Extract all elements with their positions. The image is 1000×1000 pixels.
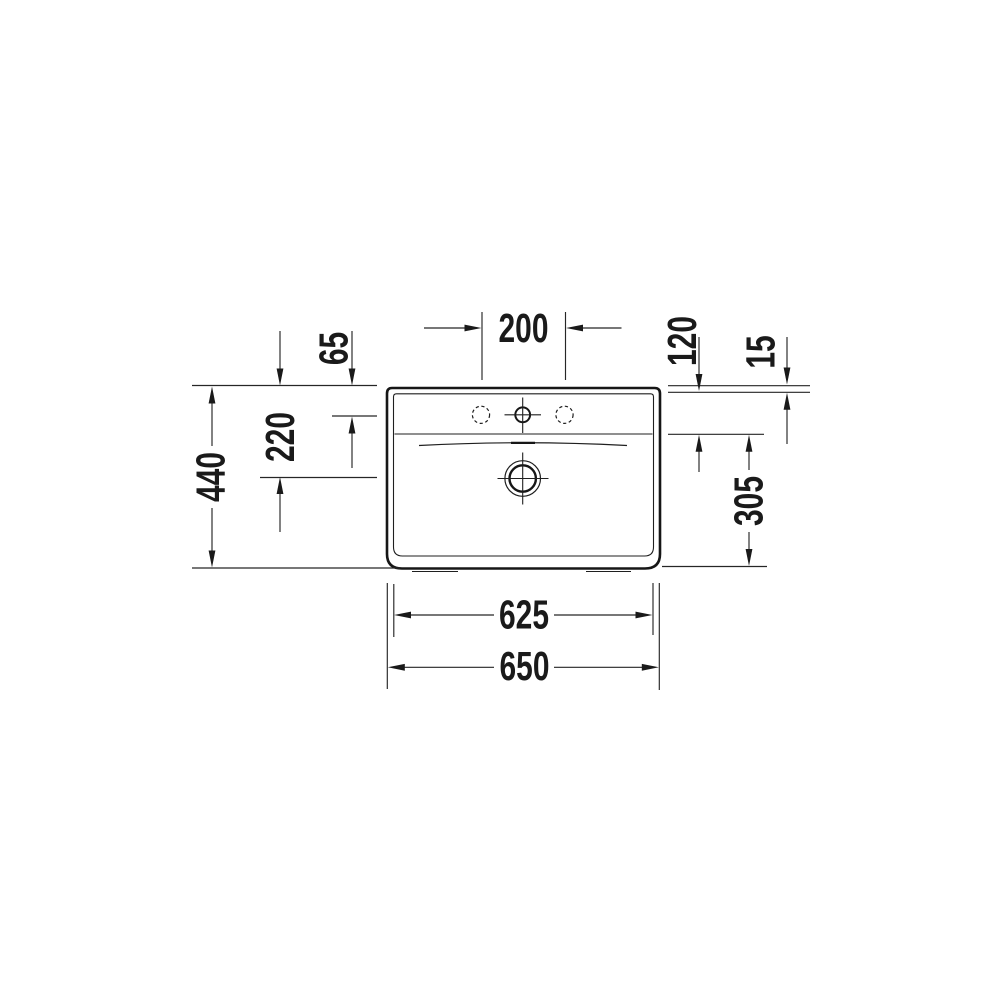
dim-625-arrow-right [636, 612, 653, 619]
dimension-650: 650 [388, 643, 659, 689]
dim-305-arrow-up [746, 435, 753, 452]
dim-15-arrow-down [784, 368, 791, 385]
dimension-200: 200 [424, 305, 622, 351]
dim-15-arrow-up [784, 393, 791, 410]
dim-200-arrow-left [465, 325, 482, 332]
technical-drawing-page: 200 65 220 440 [0, 0, 1000, 1000]
dimension-305: 305 [726, 435, 772, 566]
dim-220-arrow-down [277, 369, 284, 386]
dim-65-arrow-down [349, 369, 356, 386]
dim-120-arrow-up [696, 435, 703, 452]
dim-650-arrow-right [642, 664, 659, 671]
dim-440-arrow-up [209, 387, 216, 404]
dimension-440: 440 [188, 387, 234, 568]
dim-15-label: 15 [738, 335, 784, 368]
dim-625-arrow-left [394, 612, 411, 619]
washbasin-dimension-drawing: 200 65 220 440 [0, 0, 1000, 1000]
dim-440-label: 440 [188, 452, 234, 502]
dim-65-arrow-up [349, 417, 356, 434]
dimension-220: 220 [257, 331, 303, 532]
dim-650-label: 650 [500, 643, 550, 689]
dim-625-label: 625 [499, 592, 549, 638]
dim-65-label: 65 [311, 332, 357, 365]
dim-220-label: 220 [257, 412, 303, 462]
dim-120-label: 120 [659, 316, 705, 366]
dimension-15: 15 [738, 335, 791, 444]
dim-200-arrow-right [566, 325, 583, 332]
dimension-120: 120 [659, 316, 705, 472]
dim-440-arrow-down [209, 551, 216, 568]
dimension-625: 625 [394, 592, 653, 638]
dim-220-arrow-up [277, 477, 284, 494]
dim-650-arrow-left [388, 664, 405, 671]
dim-305-arrow-down [746, 549, 753, 566]
dim-120-arrow-down [696, 374, 703, 391]
dim-200-label: 200 [499, 305, 549, 351]
dimension-65: 65 [311, 331, 357, 468]
dim-305-label: 305 [726, 476, 772, 526]
